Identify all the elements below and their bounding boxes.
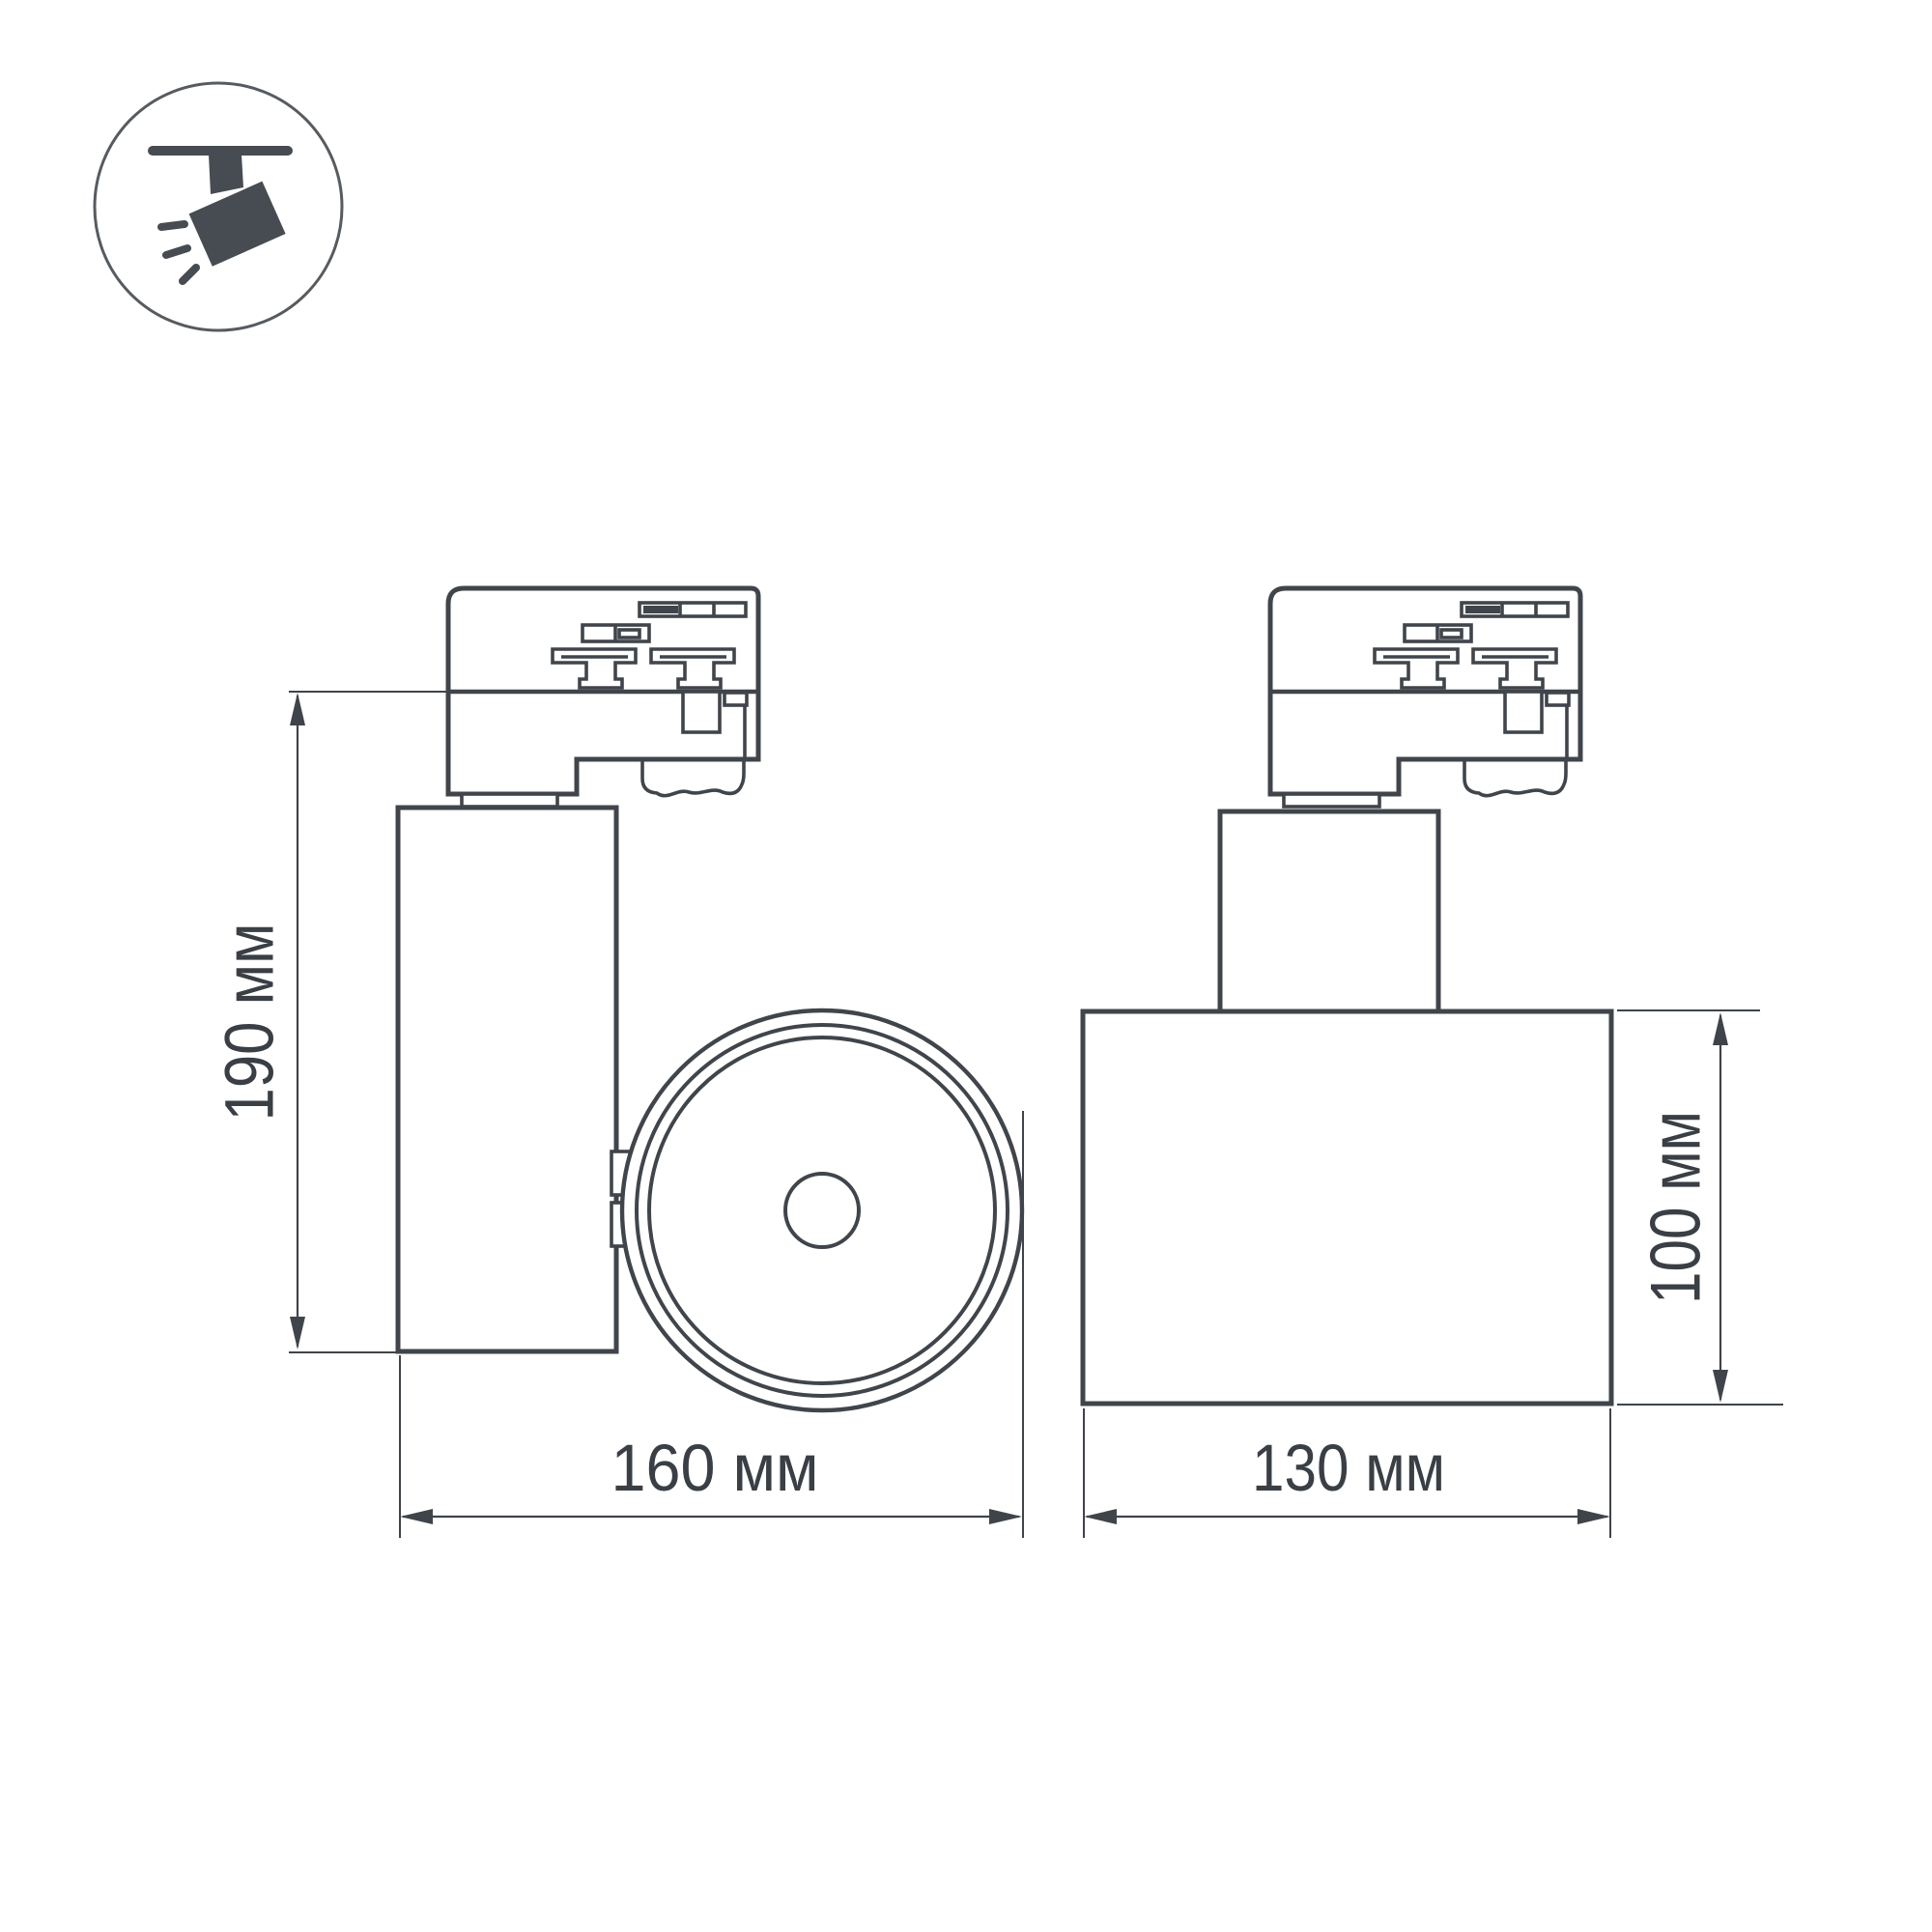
right-view-drawing: [1083, 588, 1611, 1404]
lamp-body-front: [1083, 1011, 1611, 1404]
track-light-dimension-drawing: 190 мм 160 мм 130 мм 100 мм: [0, 0, 1932, 1932]
technical-drawing-page: 190 мм 160 мм 130 мм 100 мм: [0, 0, 1932, 1932]
track-adapter-left: [448, 588, 758, 807]
dimension-label-100: 100 мм: [1637, 1111, 1716, 1304]
left-view-drawing: [398, 588, 1022, 1410]
dimension-height-100: 100 мм: [1617, 1010, 1783, 1405]
dimension-label-160: 160 мм: [611, 1431, 819, 1505]
track-spotlight-icon: [95, 83, 342, 330]
mounting-stem: [1220, 811, 1438, 1011]
dimension-label-190: 190 мм: [213, 923, 289, 1122]
track-adapter-right: [1270, 588, 1580, 807]
lens-front-circle: [622, 1010, 1022, 1410]
dimension-width-130: 130 мм: [1084, 1408, 1610, 1538]
dimension-label-130: 130 мм: [1252, 1431, 1445, 1505]
lamp-body-cylinder: [398, 808, 616, 1351]
